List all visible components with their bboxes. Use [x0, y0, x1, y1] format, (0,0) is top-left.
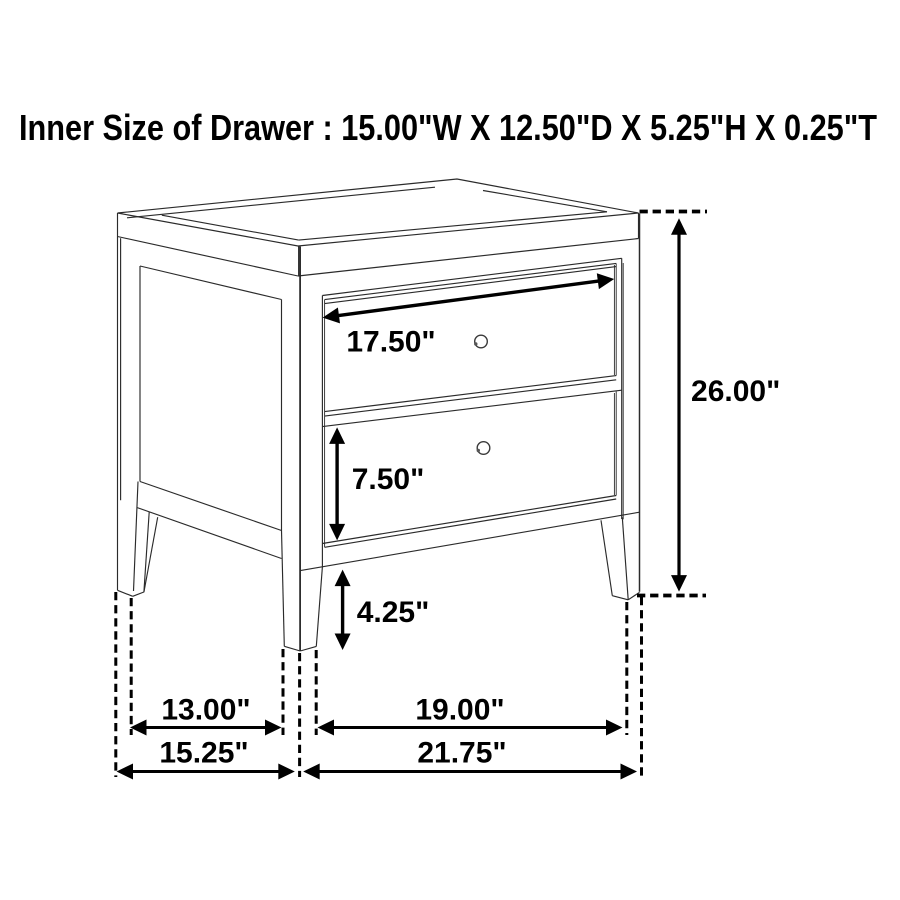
svg-text:19.00": 19.00" — [415, 694, 504, 727]
svg-text:13.00": 13.00" — [161, 694, 250, 727]
svg-text:17.50": 17.50" — [346, 326, 435, 359]
svg-text:21.75": 21.75" — [417, 737, 506, 770]
svg-text:7.50": 7.50" — [352, 463, 425, 496]
svg-text:26.00": 26.00" — [691, 375, 780, 408]
svg-text:4.25": 4.25" — [357, 596, 430, 629]
svg-text:Inner Size of Drawer : 15.00"W: Inner Size of Drawer : 15.00"W X 12.50"D… — [19, 107, 877, 148]
svg-text:15.25": 15.25" — [159, 737, 248, 770]
